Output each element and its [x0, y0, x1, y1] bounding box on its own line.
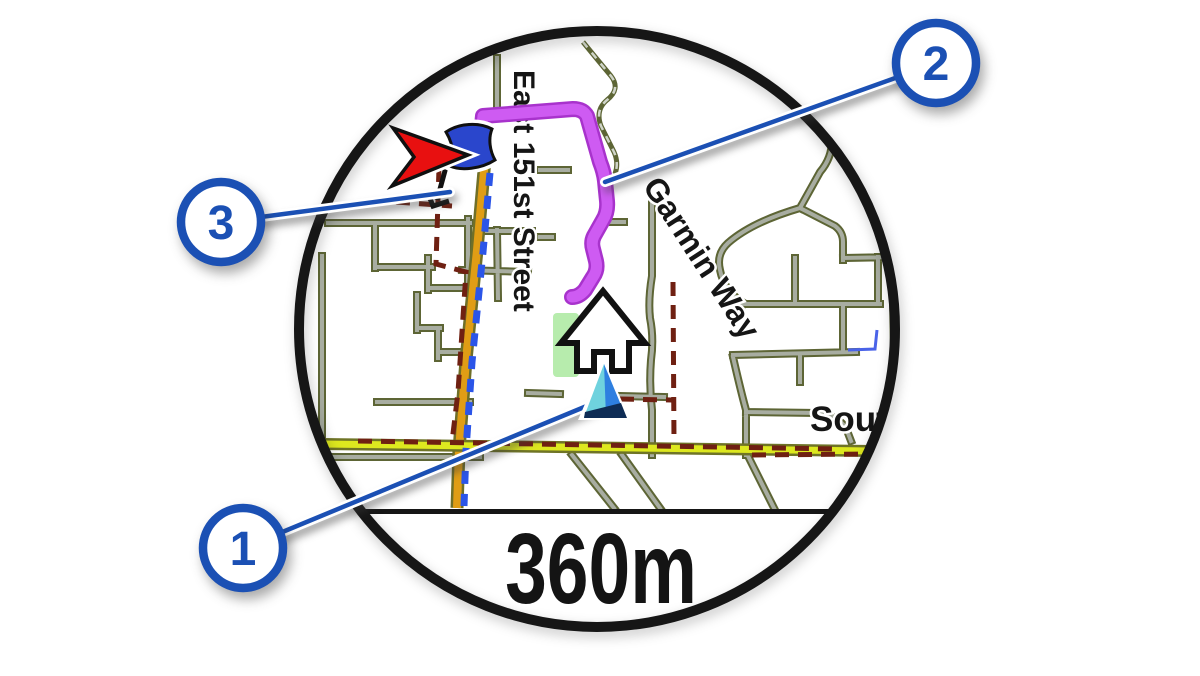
callout-2-number: 2: [923, 38, 950, 91]
callout-1: 1: [203, 508, 283, 588]
callout-3-number: 3: [208, 197, 235, 250]
figure-canvas: East 151st Street Garmin Way Sout 360m: [0, 0, 1200, 676]
watch-face: East 151st Street Garmin Way Sout 360m: [297, 31, 902, 642]
callout-3: 3: [181, 182, 261, 262]
callout-1-number: 1: [230, 523, 257, 576]
callout-2: 2: [896, 23, 976, 103]
garmin-map-figure: East 151st Street Garmin Way Sout 360m: [0, 0, 1200, 676]
scale-label: 360m: [505, 512, 697, 624]
